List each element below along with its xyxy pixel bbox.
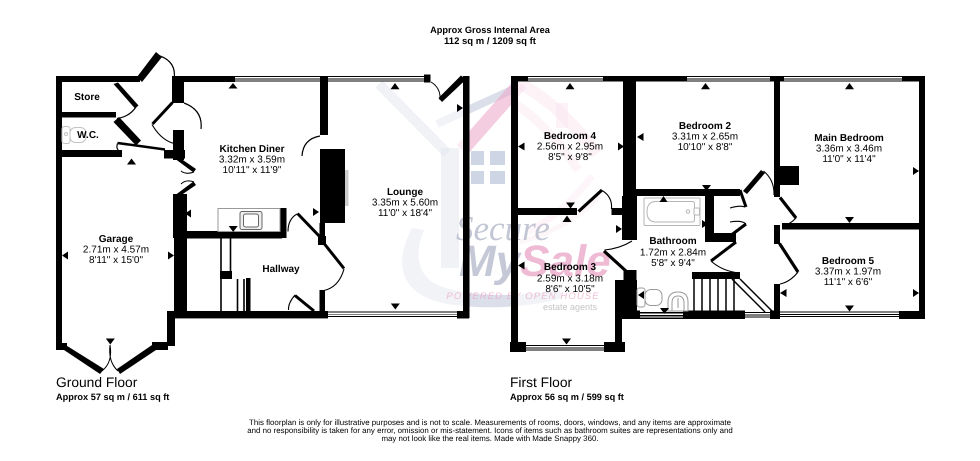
- svg-text:Bathroom: Bathroom: [649, 236, 696, 247]
- svg-text:3.35m x 5.60m: 3.35m x 5.60m: [372, 198, 438, 209]
- svg-text:Store: Store: [74, 92, 100, 103]
- svg-text:Bedroom 5: Bedroom 5: [822, 256, 875, 267]
- svg-text:2.59m x 3.18m: 2.59m x 3.18m: [537, 274, 603, 285]
- svg-text:may not look like the real ite: may not look like the real items. Made w…: [381, 434, 598, 443]
- svg-text:Ground Floor: Ground Floor: [56, 375, 138, 390]
- svg-text:10'11" x 11'9": 10'11" x 11'9": [223, 165, 282, 176]
- svg-text:3.37m x 1.97m: 3.37m x 1.97m: [815, 267, 881, 278]
- svg-text:3.31m x 2.65m: 3.31m x 2.65m: [672, 132, 738, 143]
- svg-text:Bedroom 4: Bedroom 4: [544, 131, 597, 142]
- svg-text:11'0" x 18'4": 11'0" x 18'4": [378, 208, 433, 219]
- svg-text:11'1" x 6'6": 11'1" x 6'6": [824, 277, 873, 288]
- svg-text:2.71m x 4.57m: 2.71m x 4.57m: [83, 245, 149, 256]
- svg-text:1.72m x 2.84m: 1.72m x 2.84m: [640, 248, 706, 259]
- svg-text:Bedroom 2: Bedroom 2: [679, 121, 732, 132]
- svg-text:3.32m x 3.59m: 3.32m x 3.59m: [219, 155, 285, 166]
- svg-text:Approx 56 sq m / 599 sq ft: Approx 56 sq m / 599 sq ft: [510, 392, 624, 402]
- svg-text:Hallway: Hallway: [262, 264, 300, 275]
- svg-text:11'0" x 11'4": 11'0" x 11'4": [822, 154, 876, 165]
- svg-text:5'8" x 9'4": 5'8" x 9'4": [651, 258, 695, 269]
- svg-text:estate agents: estate agents: [543, 302, 598, 312]
- svg-text:3.36m x 3.46m: 3.36m x 3.46m: [816, 144, 882, 155]
- svg-text:Lounge: Lounge: [387, 187, 424, 198]
- svg-text:Main Bedroom: Main Bedroom: [814, 133, 884, 144]
- svg-text:Kitchen Diner: Kitchen Diner: [219, 144, 284, 155]
- svg-text:8'6" x 10'5": 8'6" x 10'5": [545, 284, 595, 295]
- svg-text:Bedroom 3: Bedroom 3: [544, 262, 597, 273]
- svg-text:112 sq m / 1209 sq ft: 112 sq m / 1209 sq ft: [444, 36, 537, 47]
- svg-text:8'5" x 9'8": 8'5" x 9'8": [548, 152, 592, 163]
- svg-text:2.56m x 2.95m: 2.56m x 2.95m: [537, 142, 603, 153]
- svg-text:Garage: Garage: [99, 234, 134, 245]
- svg-text:W.C.: W.C.: [77, 130, 99, 141]
- svg-text:First Floor: First Floor: [510, 375, 572, 390]
- svg-text:Approx Gross Internal Area: Approx Gross Internal Area: [430, 25, 551, 35]
- svg-text:10'10" x 8'8": 10'10" x 8'8": [678, 142, 733, 153]
- svg-text:8'11" x 15'0": 8'11" x 15'0": [89, 255, 144, 266]
- svg-text:Approx 57 sq m / 611 sq ft: Approx 57 sq m / 611 sq ft: [56, 392, 169, 402]
